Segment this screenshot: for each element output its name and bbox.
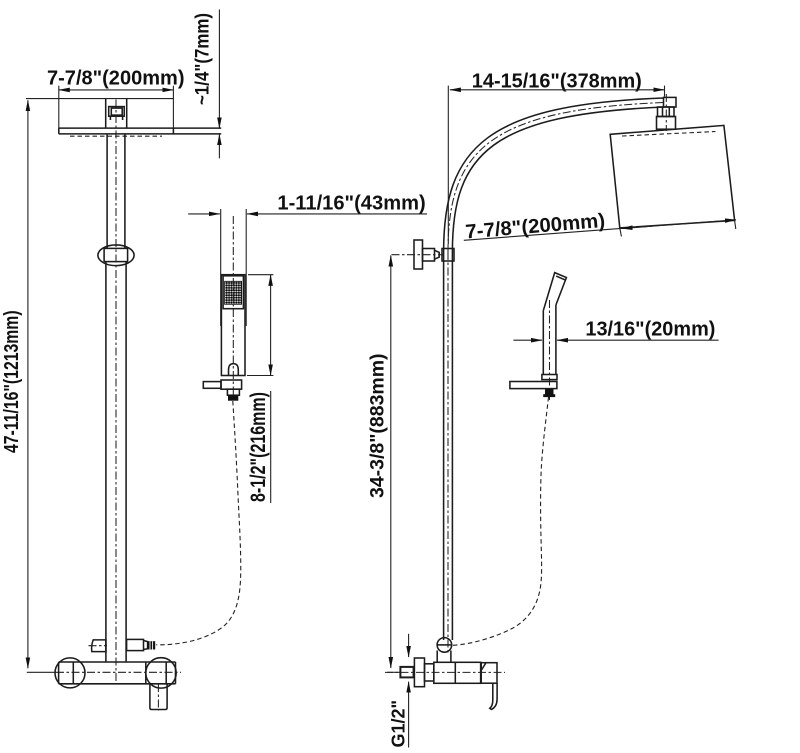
svg-text:7-7/8"(200mm): 7-7/8"(200mm) [47, 68, 185, 90]
svg-text:~1/4"(7mm): ~1/4"(7mm) [193, 13, 214, 105]
svg-text:7-7/8"(200mm): 7-7/8"(200mm) [465, 210, 606, 244]
svg-text:8-1/2"(216mm): 8-1/2"(216mm) [247, 392, 270, 502]
svg-text:13/16"(20mm): 13/16"(20mm) [585, 319, 715, 341]
svg-text:1-11/16"(43mm): 1-11/16"(43mm) [277, 192, 425, 214]
svg-text:47-11/16"(1213mm): 47-11/16"(1213mm) [1, 310, 23, 453]
svg-text:34-3/8"(883mm): 34-3/8"(883mm) [368, 354, 389, 499]
svg-text:G1/2": G1/2" [389, 700, 409, 748]
svg-text:14-15/16"(378mm): 14-15/16"(378mm) [472, 71, 642, 93]
